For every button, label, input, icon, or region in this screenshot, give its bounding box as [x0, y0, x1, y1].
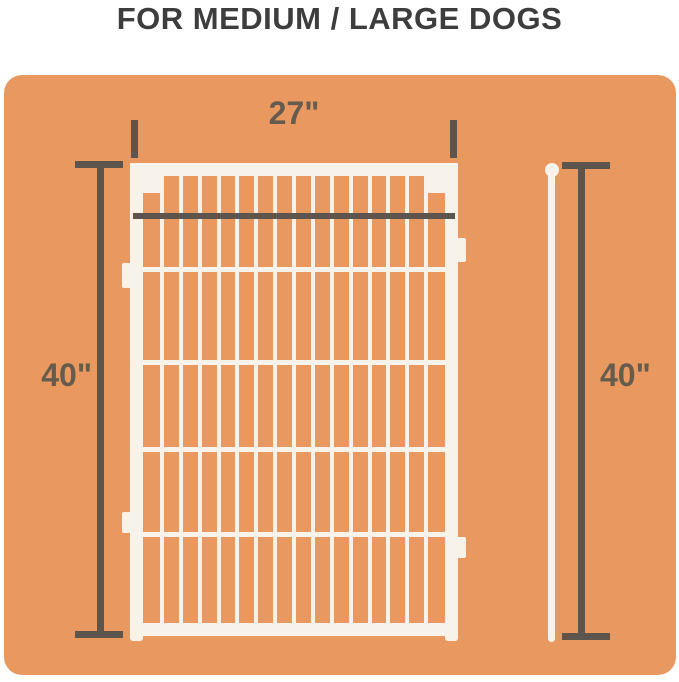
fence-vertical-bar [386, 176, 390, 623]
fence-bottom-frame [136, 623, 456, 636]
width-dimension-label: 27" [133, 96, 455, 130]
width-dimension-line [133, 213, 455, 219]
connector-tab-left-lower [122, 512, 131, 533]
fence-vertical-bar [424, 176, 428, 623]
product-infographic: FOR MEDIUM / LARGE DOGS 27" 40" [0, 0, 679, 682]
fence-vertical-bar [368, 176, 372, 623]
connector-tab-right-lower [457, 537, 466, 558]
fence-vertical-bar [405, 176, 409, 623]
fence-horizontal-rail [143, 447, 445, 452]
fence-vertical-bar [273, 176, 277, 623]
fence-vertical-bar [179, 176, 183, 623]
fence-vertical-bar [160, 176, 164, 623]
diagram-panel: 27" 40" 40" [4, 75, 676, 675]
fence-vertical-bar [198, 176, 202, 623]
connector-tab-left-upper [122, 263, 131, 288]
fence-horizontal-rail [143, 360, 445, 365]
height-dimension-label-left: 40" [4, 358, 92, 392]
height-dimension-right-cap-top [562, 162, 610, 169]
fence-vertical-bar [235, 176, 239, 623]
fence-vertical-bar [217, 176, 221, 623]
fence-vertical-bar [349, 176, 353, 623]
fence-vertical-bar [292, 176, 296, 623]
fence-left-frame [130, 163, 143, 641]
fence-right-frame [445, 163, 458, 641]
page-title: FOR MEDIUM / LARGE DOGS [0, 1, 679, 37]
measuring-rod-ball-icon [545, 163, 559, 177]
height-dimension-right-cap-bottom [562, 633, 610, 640]
height-dimension-label-right: 40" [600, 358, 679, 392]
fence-horizontal-rail [143, 532, 445, 537]
height-dimension-left-cap-bottom [75, 631, 123, 638]
fence-vertical-bar [311, 176, 315, 623]
height-dimension-line-right [578, 163, 585, 640]
height-dimension-left-cap-top [75, 161, 123, 168]
fence-horizontal-rail [143, 267, 445, 272]
fence-vertical-bar [330, 176, 334, 623]
measuring-rod [548, 170, 555, 642]
height-dimension-line-left [97, 162, 104, 638]
fence-vertical-bar [254, 176, 258, 623]
connector-tab-right-upper [457, 238, 466, 262]
fence-top-frame [130, 163, 458, 176]
